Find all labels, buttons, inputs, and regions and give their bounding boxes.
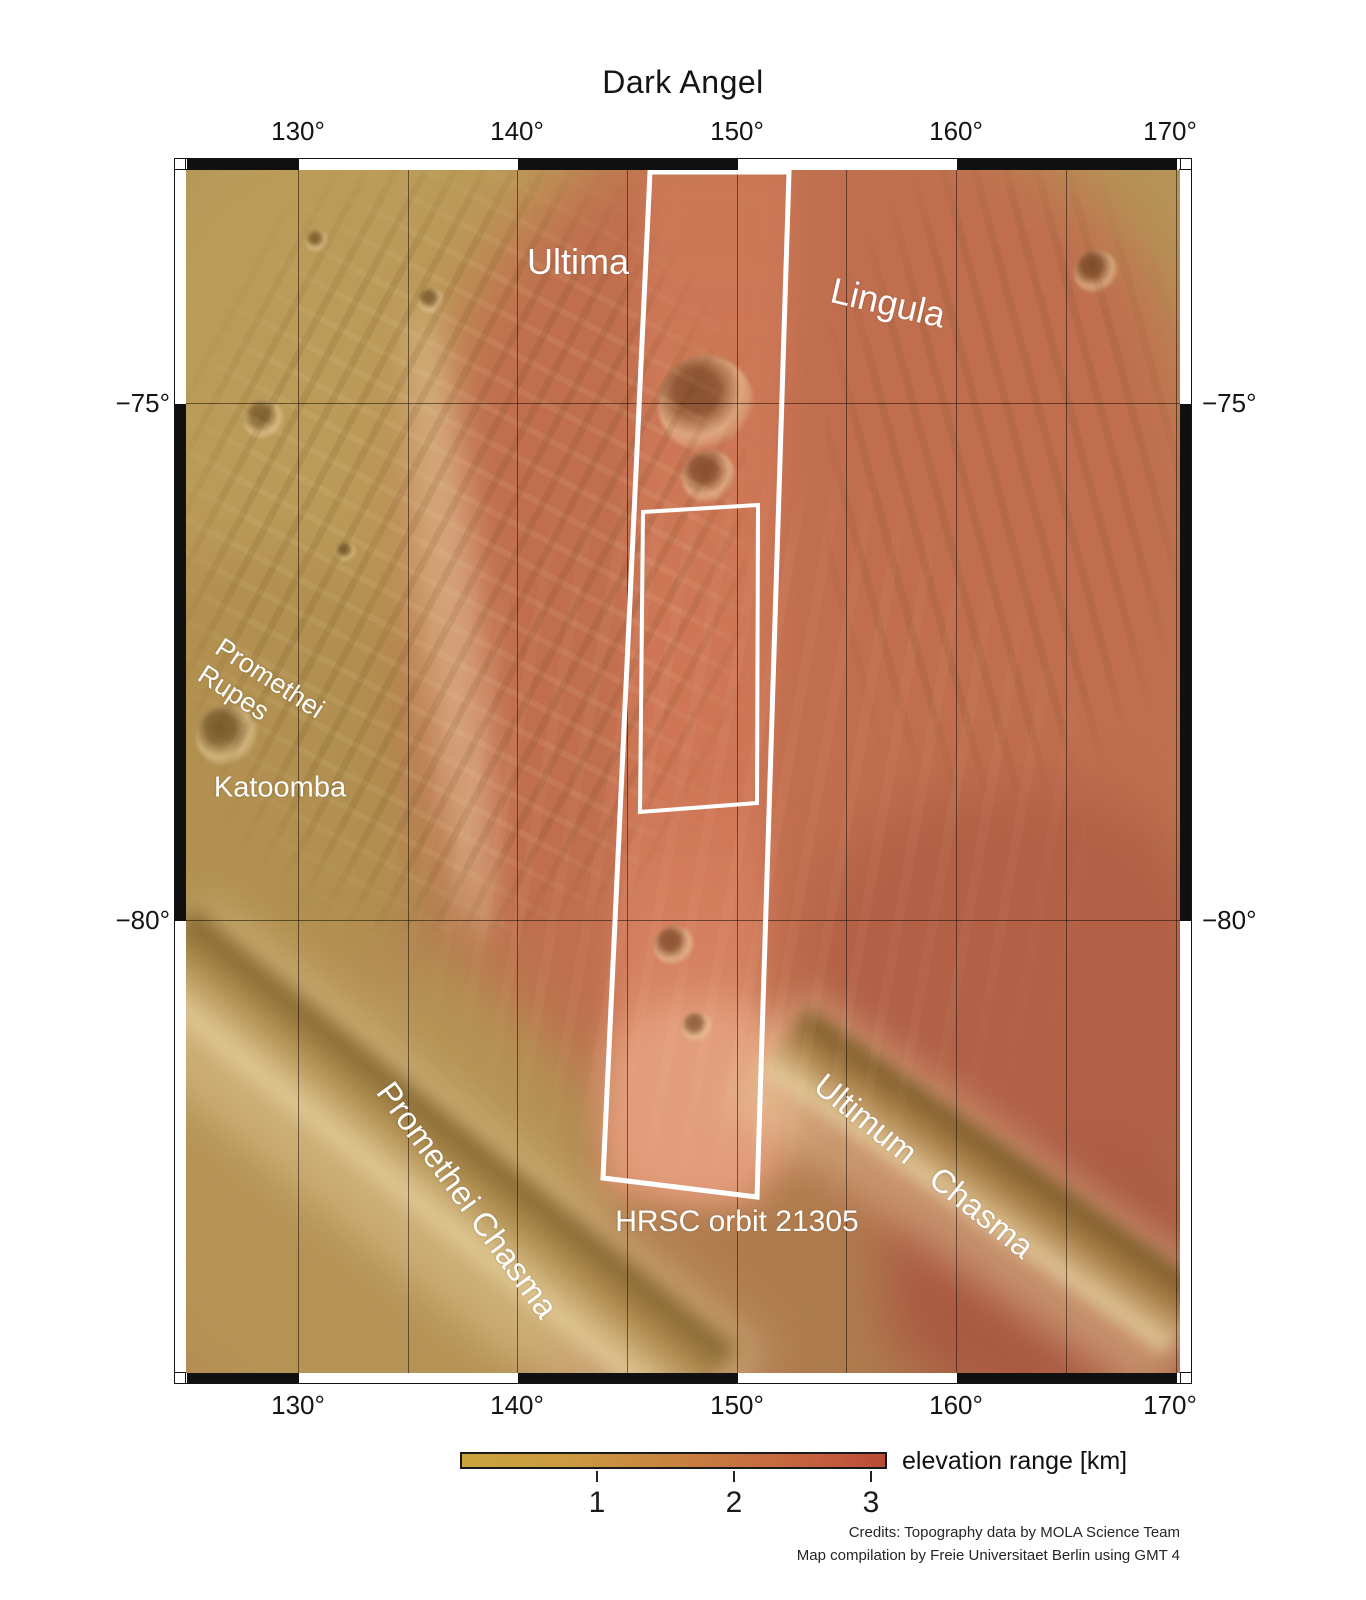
colorbar-value-1: 1 <box>589 1486 606 1520</box>
lon-tick-top-140: 140° <box>490 116 544 147</box>
frame-corner-tr <box>1180 158 1192 170</box>
credits: Credits: Topography data by MOLA Science… <box>797 1521 1180 1568</box>
colorbar-value-2: 2 <box>726 1486 743 1520</box>
lon-tick-bottom-160: 160° <box>929 1390 983 1421</box>
hrsc-orbit-strip-outline <box>603 172 789 1197</box>
lon-tick-top-150: 150° <box>710 116 764 147</box>
hrsc-image-box-outline <box>640 505 758 812</box>
lon-tick-top-170: 170° <box>1143 116 1197 147</box>
colorbar-tick-2 <box>733 1471 735 1482</box>
map-canvas: Ultima Lingula Promethei Rupes Katoomba … <box>186 170 1180 1373</box>
credits-line2: Map compilation by Freie Universitaet Be… <box>797 1544 1180 1567</box>
frame-corner-br <box>1180 1372 1192 1384</box>
lon-tick-bottom-170: 170° <box>1143 1390 1197 1421</box>
lat-tick-right-m75: −75° <box>1202 388 1257 419</box>
colorbar-tick-1 <box>596 1471 598 1482</box>
lat-tick-left-m80: −80° <box>0 905 170 936</box>
lat-tick-left-m75: −75° <box>0 388 170 419</box>
lon-tick-bottom-140: 140° <box>490 1390 544 1421</box>
lon-tick-bottom-130: 130° <box>271 1390 325 1421</box>
frame-bar-right <box>1179 169 1192 1373</box>
label-katoomba: Katoomba <box>214 772 346 805</box>
lon-tick-top-160: 160° <box>929 116 983 147</box>
lat-tick-right-m80: −80° <box>1202 905 1257 936</box>
colorbar-value-3: 3 <box>863 1486 880 1520</box>
colorbar-label: elevation range [km] <box>902 1447 1127 1476</box>
page-title: Dark Angel <box>0 64 1366 101</box>
colorbar-tick-3 <box>870 1471 872 1482</box>
credits-line1: Credits: Topography data by MOLA Science… <box>797 1521 1180 1544</box>
lon-tick-bottom-150: 150° <box>710 1390 764 1421</box>
label-ultima: Ultima <box>527 241 629 283</box>
frame-corner-bl <box>174 1372 186 1384</box>
label-hrsc-orbit: HRSC orbit 21305 <box>615 1205 858 1239</box>
lon-tick-top-130: 130° <box>271 116 325 147</box>
mars-topography-map-page: Dark Angel 130° 140° 150° 160° 170° 130°… <box>0 0 1366 1600</box>
elevation-colorbar <box>460 1452 887 1469</box>
map-frame: Ultima Lingula Promethei Rupes Katoomba … <box>174 158 1192 1384</box>
frame-corner-tl <box>174 158 186 170</box>
